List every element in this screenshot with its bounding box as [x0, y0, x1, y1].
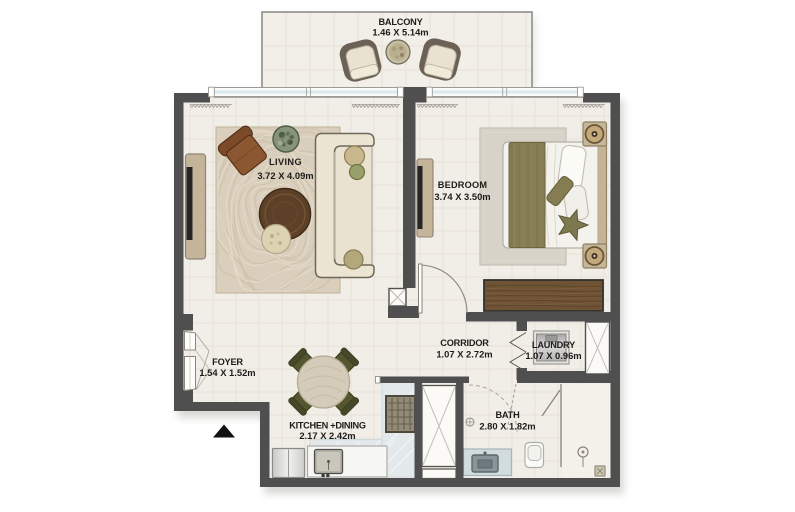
svg-text:LIVING: LIVING — [269, 157, 302, 167]
svg-text:KITCHEN +DINING: KITCHEN +DINING — [289, 421, 366, 431]
svg-text:BALCONY: BALCONY — [378, 17, 422, 27]
svg-text:BEDROOM: BEDROOM — [438, 180, 488, 190]
svg-text:2.17 X 2.42m: 2.17 X 2.42m — [299, 430, 355, 441]
svg-text:FOYER: FOYER — [212, 357, 243, 367]
svg-text:1.46 X 5.14m: 1.46 X 5.14m — [372, 27, 428, 38]
svg-text:CORRIDOR: CORRIDOR — [440, 338, 489, 348]
svg-text:2.80 X 1.82m: 2.80 X 1.82m — [479, 421, 535, 432]
svg-text:1.07 X 2.72m: 1.07 X 2.72m — [436, 349, 492, 360]
svg-text:1.54 X 1.52m: 1.54 X 1.52m — [199, 367, 255, 378]
svg-text:BATH: BATH — [495, 410, 520, 420]
svg-text:LAUNDRY: LAUNDRY — [532, 340, 575, 350]
svg-text:1.07 X 0.96m: 1.07 X 0.96m — [525, 350, 581, 361]
svg-text:3.74 X 3.50m: 3.74 X 3.50m — [434, 191, 490, 202]
svg-text:3.72 X 4.09m: 3.72 X 4.09m — [257, 170, 313, 181]
